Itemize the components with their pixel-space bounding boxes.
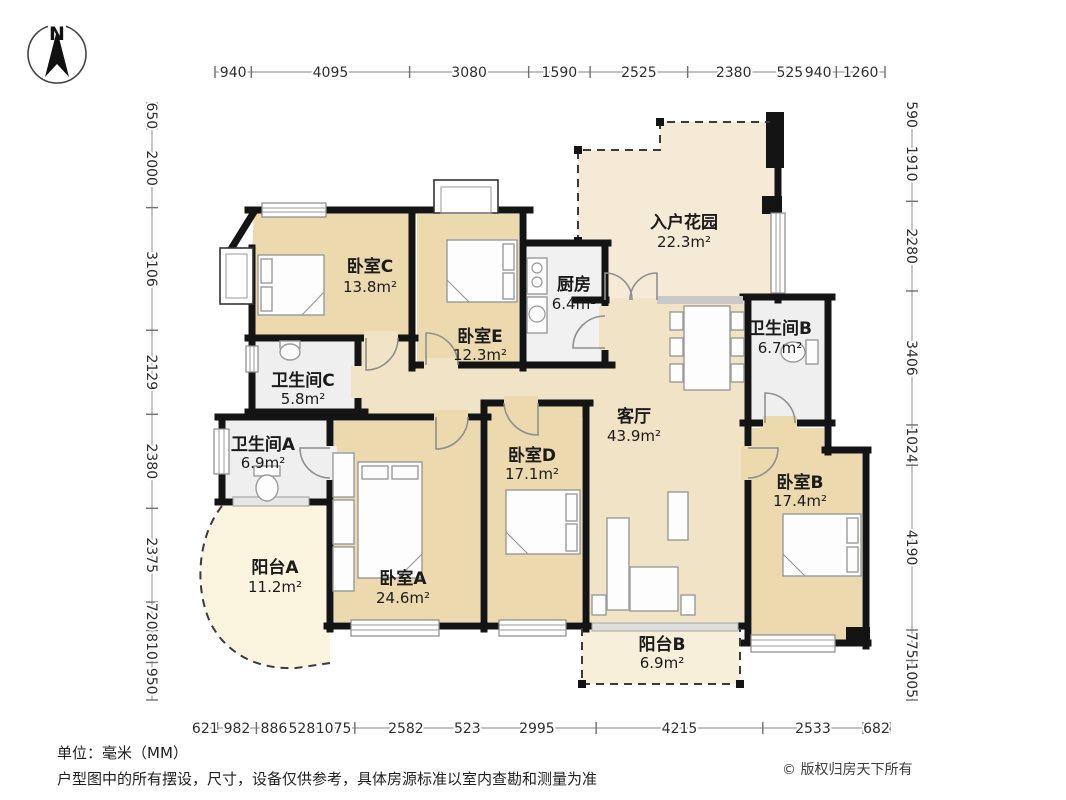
window-bath-a-left [214, 429, 229, 474]
svg-text:11.2m²: 11.2m² [248, 578, 302, 596]
dim-label-bottom: 523 [454, 721, 481, 737]
dim-label-bottom: 886 [261, 721, 288, 737]
svg-text:卫生间C: 卫生间C [271, 370, 334, 391]
dim-label-left: 2380 [143, 443, 159, 479]
opening-bedroom-a [434, 410, 468, 423]
dash-node-4 [578, 680, 586, 688]
svg-text:6.4m²: 6.4m² [552, 295, 596, 313]
compass-north-label: N [49, 23, 65, 45]
dim-label-right: 3406 [903, 340, 919, 376]
dimension-chain-bottom: 62198288652810752582523299542152533682 [192, 721, 890, 737]
room-fill-corridor-1 [360, 338, 415, 414]
label-bedroom-d: 卧室D 17.1m² [505, 445, 559, 483]
dim-label-top: 2380 [716, 65, 752, 81]
dash-node-2 [656, 118, 664, 126]
svg-text:17.4m²: 17.4m² [773, 492, 827, 510]
dim-label-bottom: 2533 [795, 721, 831, 737]
dimension-chain-left: 65020003106212923802375720810950 [143, 102, 159, 700]
dim-label-top: 525 [776, 65, 803, 81]
label-bath-c: 卫生间C 5.8m² [271, 370, 334, 408]
svg-text:入户花园: 入户花园 [650, 212, 718, 233]
dim-label-left: 2129 [143, 354, 159, 390]
dim-label-bottom: 4215 [662, 721, 698, 737]
svg-text:6.9m²: 6.9m² [241, 454, 285, 472]
label-bedroom-c: 卧室C 13.8m² [343, 256, 397, 296]
dim-label-bottom: 1075 [316, 721, 352, 737]
dim-label-right: 1910 [903, 146, 919, 182]
window-garden-right [771, 213, 785, 293]
dim-label-left: 810 [143, 633, 159, 660]
dim-label-top: 2525 [621, 65, 657, 81]
dim-label-bottom: 982 [224, 721, 251, 737]
label-bedroom-a: 卧室A 24.6m² [376, 568, 430, 607]
dim-label-right: 2280 [903, 228, 919, 264]
svg-text:卫生间A: 卫生间A [231, 434, 296, 455]
wall-block-garden-right [762, 196, 782, 214]
dash-node-3 [574, 237, 582, 245]
svg-text:6.7m²: 6.7m² [758, 339, 802, 357]
bed-bedroom-c [258, 255, 324, 315]
svg-text:13.8m²: 13.8m² [343, 278, 397, 296]
sill-balcony-b [592, 623, 738, 631]
dim-label-left: 650 [143, 102, 159, 129]
svg-text:22.3m²: 22.3m² [657, 233, 711, 251]
label-balcony-a: 阳台A 11.2m² [248, 557, 302, 596]
window-bay-bedroom-c-left [220, 248, 253, 304]
dim-label-left: 2000 [143, 150, 159, 186]
dimension-chain-top: 940409530801590252523805259401260 [215, 65, 885, 81]
dash-node-1 [574, 146, 582, 154]
dim-label-bottom: 2582 [388, 721, 424, 737]
dim-label-right: 590 [903, 101, 919, 128]
svg-text:客厅: 客厅 [616, 406, 651, 427]
label-kitchen: 厨房 6.4m² [552, 274, 596, 313]
copyright: © 版权归房天下所有 [782, 761, 912, 778]
wall-block-bedroom-b-corner [846, 627, 870, 645]
svg-text:卧室B: 卧室B [777, 472, 824, 493]
svg-text:24.6m²: 24.6m² [376, 589, 430, 607]
window-bedroom-a-bottom [351, 620, 439, 636]
dim-label-top: 3080 [451, 65, 487, 81]
dim-label-left: 2375 [143, 537, 159, 573]
dim-label-top: 1260 [843, 65, 879, 81]
label-balcony-b: 阳台B 6.9m² [639, 634, 686, 672]
svg-text:卧室E: 卧室E [457, 326, 503, 347]
dim-label-right: 1005 [903, 662, 919, 698]
footer: 单位：毫米（MM） 户型图中的所有摆设，尺寸，设备仅供参考，具体房源标准以室内查… [57, 744, 912, 788]
bed-bedroom-a [358, 462, 422, 578]
label-bedroom-b: 卧室B 17.4m² [773, 472, 827, 510]
label-entry-garden: 入户花园 22.3m² [650, 212, 718, 251]
svg-text:17.1m²: 17.1m² [505, 465, 559, 483]
svg-text:6.9m²: 6.9m² [640, 654, 684, 672]
dim-label-right: 1024 [903, 427, 919, 463]
dim-label-top: 1590 [542, 65, 578, 81]
opening-bath-b [763, 416, 797, 429]
dim-label-bottom: 528 [289, 721, 316, 737]
opening-bedroom-c [364, 331, 398, 344]
floorplan-svg: N [0, 0, 1066, 800]
opening-bath-c [351, 366, 365, 398]
window-bath-c-left [246, 346, 258, 372]
window-bedroom-d-bottom [499, 620, 566, 636]
svg-text:阳台B: 阳台B [639, 634, 686, 655]
opening-kitchen [599, 306, 611, 350]
dim-label-top: 940 [805, 65, 832, 81]
dim-label-right: 775 [903, 632, 919, 659]
dim-label-top: 4095 [313, 65, 349, 81]
wall-block-garden-top [766, 112, 784, 168]
wardrobe-bedroom-a [333, 453, 354, 591]
window-bedroom-c-top [262, 203, 326, 217]
svg-text:卧室C: 卧室C [347, 256, 393, 277]
dim-label-bottom: 2995 [519, 721, 555, 737]
dim-label-bottom: 682 [863, 721, 890, 737]
window-bedroom-b-bottom [751, 635, 835, 652]
floorplan-page: N [0, 0, 1066, 800]
dash-node-5 [736, 680, 744, 688]
svg-text:厨房: 厨房 [557, 274, 591, 295]
sink-bath-c [280, 341, 300, 360]
svg-text:5.8m²: 5.8m² [281, 390, 325, 408]
dim-label-left: 720 [143, 603, 159, 630]
beam-garden-living [657, 296, 743, 304]
bed-bedroom-b [783, 514, 861, 576]
bed-bedroom-d [506, 490, 580, 554]
dim-label-left: 3106 [143, 251, 159, 287]
svg-text:卫生间B: 卫生间B [748, 318, 812, 339]
dimension-chain-right: 590191022803406102441907751005 [903, 101, 919, 700]
opening-bedroom-b [741, 446, 755, 480]
opening-bedroom-d [504, 396, 538, 409]
label-bedroom-e: 卧室E 12.3m² [453, 326, 507, 364]
svg-text:卧室D: 卧室D [508, 445, 556, 466]
window-bay-bedroom-e [434, 180, 498, 213]
svg-text:阳台A: 阳台A [251, 557, 299, 578]
bed-bedroom-e [447, 240, 517, 302]
dim-label-right: 4190 [903, 530, 919, 566]
compass: N [28, 22, 86, 83]
dining-table [670, 306, 744, 390]
svg-text:43.9m²: 43.9m² [607, 427, 661, 445]
svg-text:12.3m²: 12.3m² [453, 346, 507, 364]
svg-text:卧室A: 卧室A [379, 568, 427, 589]
dim-label-top: 940 [220, 65, 247, 81]
unit-note: 单位：毫米（MM） [57, 744, 188, 762]
dim-label-bottom: 621 [192, 721, 219, 737]
dim-label-left: 950 [143, 668, 159, 695]
disclaimer: 户型图中的所有摆设，尺寸，设备仅供参考，具体房源标准以室内查勘和测量为准 [57, 770, 597, 788]
